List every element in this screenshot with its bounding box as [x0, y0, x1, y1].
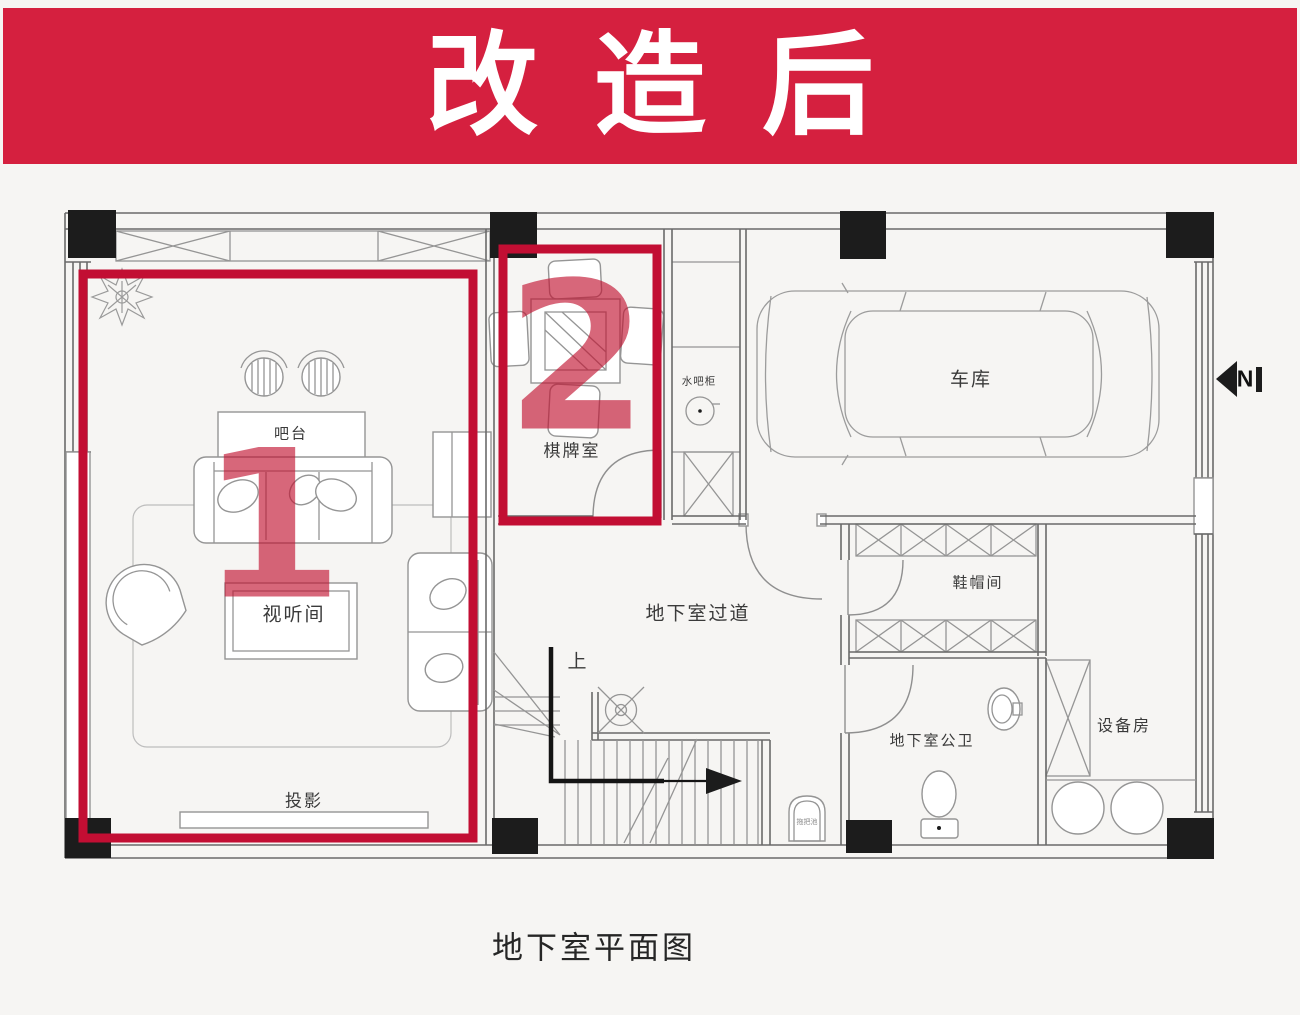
- north-label: N: [1237, 366, 1254, 393]
- chaise-sofa: [408, 553, 492, 711]
- stairs-up-label: 上: [567, 647, 588, 674]
- room-label-corridor: 地下室过道: [645, 599, 750, 626]
- projection-screen: [180, 812, 428, 828]
- garage-corridor-door: [739, 514, 826, 599]
- room-label-water-bar: 水吧柜: [682, 374, 717, 389]
- bathroom-door: [845, 665, 913, 733]
- room-label-bar-counter: 吧台: [274, 423, 308, 444]
- bar-stools: [241, 351, 344, 396]
- zone2-number: 2: [506, 257, 649, 462]
- room-label-garage: 车库: [950, 365, 992, 392]
- water-bar-cabinet: [672, 262, 740, 516]
- cloakroom-cabinets: [856, 524, 1036, 652]
- floor-drain-icon: [598, 687, 644, 733]
- tv-console: [433, 432, 491, 517]
- bathroom-sink: [988, 688, 1022, 730]
- room-label-equipment-room: 设备房: [1097, 712, 1151, 736]
- plan-caption: 地下室平面图: [492, 923, 696, 968]
- cloakroom-door: [848, 560, 903, 615]
- armchair: [91, 549, 197, 655]
- room-label-chess-room: 棋牌室: [544, 437, 601, 462]
- room-label-cloakroom: 鞋帽间: [952, 572, 1003, 593]
- room-label-projection: 投影: [285, 787, 323, 812]
- toilet: [921, 771, 958, 838]
- mop-basin-label: 拖把池: [797, 817, 818, 827]
- floor-plan-page: 改造后: [0, 0, 1300, 1015]
- room-label-bathroom: 地下室公卫: [889, 730, 974, 751]
- zone1-top-closet: [116, 231, 490, 261]
- floor-plan-drawing: [0, 0, 1300, 1015]
- equipment-rack: [1046, 660, 1090, 776]
- stairs: [494, 647, 758, 844]
- room-label-av-room: 视听间: [262, 600, 325, 627]
